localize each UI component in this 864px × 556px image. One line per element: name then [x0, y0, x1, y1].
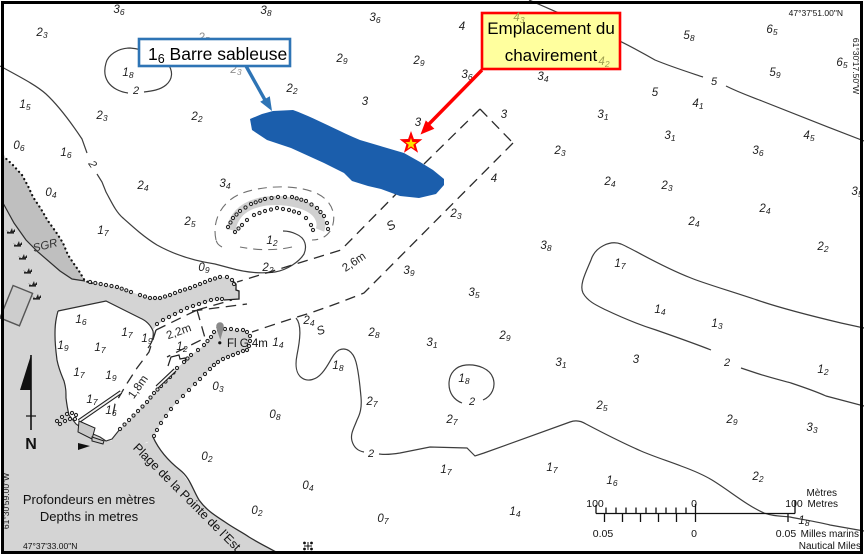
svg-text:3: 3	[501, 109, 508, 121]
svg-text:Depths in metres: Depths in metres	[40, 509, 139, 524]
svg-text:16 Barre sableuse: 16 Barre sableuse	[148, 44, 287, 66]
svg-text:N: N	[25, 436, 37, 453]
svg-text:0.05: 0.05	[593, 528, 614, 540]
svg-text:100: 100	[586, 498, 604, 510]
svg-text:Emplacement du: Emplacement du	[487, 19, 615, 38]
svg-text:0.05: 0.05	[776, 528, 797, 540]
svg-text:100: 100	[785, 498, 803, 510]
svg-text:3: 3	[415, 117, 422, 129]
svg-text:61°30'17.50"W: 61°30'17.50"W	[851, 38, 861, 94]
svg-text:3: 3	[633, 354, 640, 366]
svg-text:2: 2	[132, 85, 139, 97]
svg-text:5: 5	[711, 76, 718, 88]
svg-text:3: 3	[362, 96, 369, 108]
svg-text:chavirement: chavirement	[505, 46, 598, 65]
svg-text:Mètres: Mètres	[806, 488, 837, 499]
svg-text:Milles marins: Milles marins	[801, 529, 859, 540]
svg-text:4: 4	[491, 173, 497, 185]
svg-text:0: 0	[691, 498, 697, 510]
svg-text:47°37'33.00"N: 47°37'33.00"N	[23, 541, 77, 551]
svg-text:5: 5	[652, 87, 659, 99]
svg-text:4: 4	[459, 21, 465, 33]
svg-text:0: 0	[691, 528, 697, 540]
svg-text:2: 2	[367, 448, 374, 460]
svg-text:2: 2	[468, 396, 475, 408]
svg-text:2: 2	[723, 357, 730, 369]
svg-text:Nautical Miles: Nautical Miles	[799, 541, 861, 552]
svg-text:Metres: Metres	[807, 499, 838, 510]
svg-text:47°37'51.00"N: 47°37'51.00"N	[789, 8, 843, 18]
svg-text:Profondeurs en mètres: Profondeurs en mètres	[23, 492, 156, 507]
svg-text:Fl G 4m: Fl G 4m	[227, 338, 268, 350]
